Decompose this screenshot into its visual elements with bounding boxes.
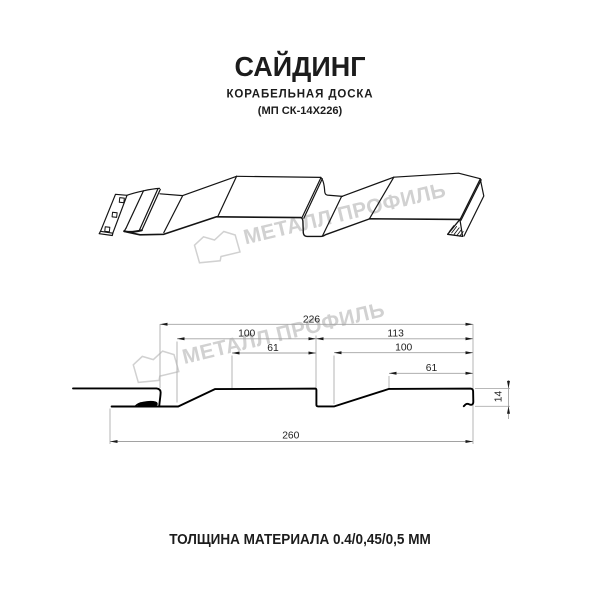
svg-text:260: 260 xyxy=(282,430,299,441)
svg-text:КОРАБЕЛЬНАЯ ДОСКА: КОРАБЕЛЬНАЯ ДОСКА xyxy=(227,87,374,101)
svg-text:61: 61 xyxy=(267,343,279,354)
svg-text:МЕТАЛЛ ПРОФИЛЬ: МЕТАЛЛ ПРОФИЛЬ xyxy=(241,179,448,250)
svg-text:14: 14 xyxy=(494,391,505,403)
svg-text:МЕТАЛЛ ПРОФИЛЬ: МЕТАЛЛ ПРОФИЛЬ xyxy=(180,298,387,369)
svg-text:113: 113 xyxy=(387,328,404,339)
svg-text:61: 61 xyxy=(426,363,438,374)
svg-text:226: 226 xyxy=(303,314,320,325)
svg-text:САЙДИНГ: САЙДИНГ xyxy=(235,50,366,82)
svg-text:100: 100 xyxy=(238,328,255,339)
svg-text:(МП СК-14Х226): (МП СК-14Х226) xyxy=(258,105,343,117)
svg-text:ТОЛЩИНА МАТЕРИАЛА 0.4/0,45/0,5: ТОЛЩИНА МАТЕРИАЛА 0.4/0,45/0,5 ММ xyxy=(169,532,431,548)
svg-text:100: 100 xyxy=(395,343,412,354)
